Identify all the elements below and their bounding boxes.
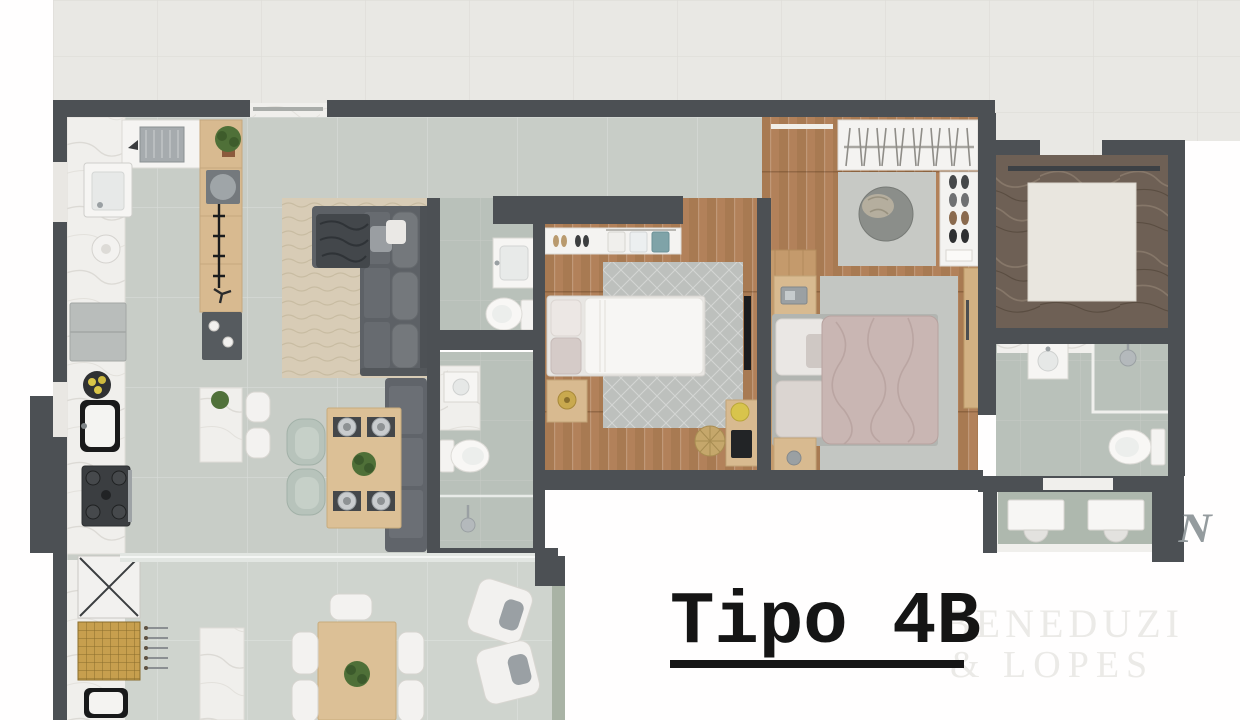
bath-2-sink bbox=[444, 372, 478, 402]
tv-bedroom-1 bbox=[744, 296, 751, 370]
master-bath-sink bbox=[1028, 343, 1068, 379]
laundry-threshold bbox=[1043, 478, 1113, 490]
shoe-shelf bbox=[940, 172, 978, 266]
hanging-shirt bbox=[652, 232, 669, 252]
duct-shaft bbox=[78, 556, 140, 618]
terrace-chair bbox=[292, 632, 318, 674]
fruit-bowl bbox=[83, 371, 111, 399]
watermark-line-2: & LOPES bbox=[950, 646, 1184, 684]
terrace-plant bbox=[344, 661, 370, 687]
hall-closet-shelf bbox=[545, 228, 681, 254]
cooktop bbox=[82, 466, 132, 526]
buffet-sideboard bbox=[200, 120, 242, 312]
wall-shelf-appliance bbox=[122, 120, 202, 168]
kitchen-sink bbox=[84, 163, 132, 217]
terrace-chair bbox=[330, 594, 372, 620]
terrace-chair bbox=[398, 632, 424, 674]
plan-title: Tipo 4B bbox=[670, 586, 981, 660]
bed-1 bbox=[547, 296, 705, 376]
terrace-planter bbox=[552, 585, 565, 720]
hall-floor bbox=[242, 113, 762, 198]
floor-plan-page: BENEDUZI & LOPES N Tipo 4B bbox=[0, 0, 1240, 720]
shower-head bbox=[461, 518, 475, 532]
title-underline bbox=[670, 660, 964, 668]
terrace-island bbox=[200, 628, 244, 720]
bathroom-1 bbox=[486, 238, 535, 330]
terrace-sink bbox=[84, 688, 128, 718]
wardrobe-strip bbox=[964, 268, 980, 408]
hanging-shirt bbox=[630, 232, 647, 252]
yellow-stool bbox=[731, 403, 749, 421]
prep-sink bbox=[80, 400, 120, 452]
elevator-doors bbox=[1008, 166, 1160, 171]
paper-towel bbox=[92, 235, 120, 263]
hanging-shirt bbox=[608, 232, 625, 252]
elevator-hall-rug bbox=[1028, 183, 1136, 301]
desk-bedroom-1 bbox=[726, 400, 758, 466]
clothes-pouf bbox=[859, 187, 913, 241]
island-stool bbox=[246, 428, 270, 458]
closet bbox=[838, 120, 978, 170]
bedroom-2-door bbox=[771, 124, 833, 129]
bath-1-sink bbox=[493, 238, 535, 288]
table-plant bbox=[352, 452, 376, 476]
terrace-chair bbox=[398, 680, 424, 720]
bath-1-toilet bbox=[486, 298, 534, 330]
master-toilet bbox=[1109, 429, 1165, 465]
sofa-pillow bbox=[386, 220, 406, 244]
window-sill bbox=[53, 382, 67, 437]
elevator-opening bbox=[1040, 140, 1102, 155]
island-plant bbox=[211, 391, 229, 409]
shower-head bbox=[1120, 350, 1136, 366]
bath-2-toilet bbox=[440, 440, 489, 472]
bed-2 bbox=[772, 314, 938, 446]
island-stool bbox=[246, 392, 270, 422]
window-sill bbox=[53, 162, 67, 222]
living-room bbox=[282, 198, 430, 552]
nightstand-2a bbox=[774, 276, 816, 318]
sofa-throw bbox=[316, 214, 370, 268]
coffee-station bbox=[202, 312, 242, 360]
terrace-chair bbox=[292, 680, 318, 720]
refrigerator bbox=[70, 303, 126, 361]
entry-door bbox=[253, 107, 323, 111]
jute-pouf bbox=[695, 426, 725, 456]
nightstand-1 bbox=[547, 380, 587, 422]
